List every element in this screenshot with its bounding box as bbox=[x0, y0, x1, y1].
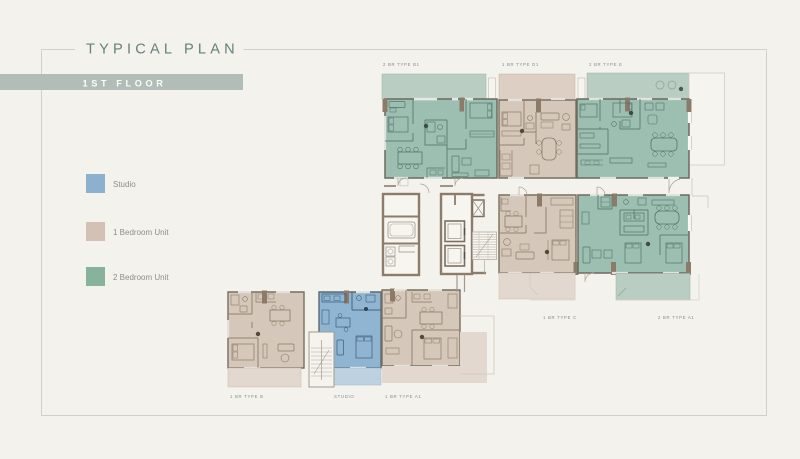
svg-text:1 Bedroom Unit: 1 Bedroom Unit bbox=[113, 228, 169, 237]
svg-text:1 BR TYPE B: 1 BR TYPE B bbox=[230, 394, 264, 399]
svg-text:TYPICAL PLAN: TYPICAL PLAN bbox=[86, 42, 239, 58]
svg-text:1 BR TYPE C: 1 BR TYPE C bbox=[543, 315, 577, 320]
svg-text:STUDIO: STUDIO bbox=[334, 394, 354, 399]
svg-text:2 BR TYPE E: 2 BR TYPE E bbox=[589, 62, 623, 67]
svg-text:2 BR TYPE A1: 2 BR TYPE A1 bbox=[658, 315, 695, 320]
svg-text:2 Bedroom Unit: 2 Bedroom Unit bbox=[113, 273, 169, 282]
svg-text:1 BR TYPE D1: 1 BR TYPE D1 bbox=[502, 62, 539, 67]
svg-text:Studio: Studio bbox=[113, 180, 136, 189]
svg-text:1 BR TYPE A1: 1 BR TYPE A1 bbox=[385, 394, 422, 399]
svg-text:2 BR TYPE B1: 2 BR TYPE B1 bbox=[383, 62, 420, 67]
svg-text:1ST FLOOR: 1ST FLOOR bbox=[83, 79, 167, 89]
